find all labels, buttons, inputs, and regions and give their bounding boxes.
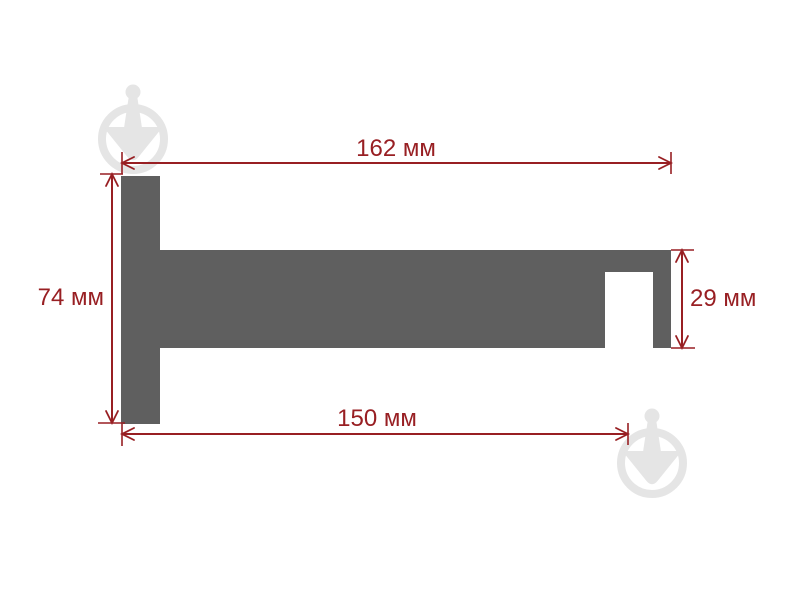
- profile-drawing: [0, 0, 799, 599]
- dim-label-right-height: 29 мм: [690, 284, 756, 314]
- watermark-trowel-logo-bottom-right: [621, 409, 683, 495]
- dim-label-top-width: 162 мм: [300, 134, 492, 164]
- dim-label-left-height: 74 мм: [14, 283, 104, 313]
- technical-drawing-canvas: 162 мм 74 мм 150 мм 29 мм: [0, 0, 799, 599]
- profile-cross-section-shape: [121, 176, 671, 424]
- dim-label-bottom-width: 150 мм: [281, 404, 473, 434]
